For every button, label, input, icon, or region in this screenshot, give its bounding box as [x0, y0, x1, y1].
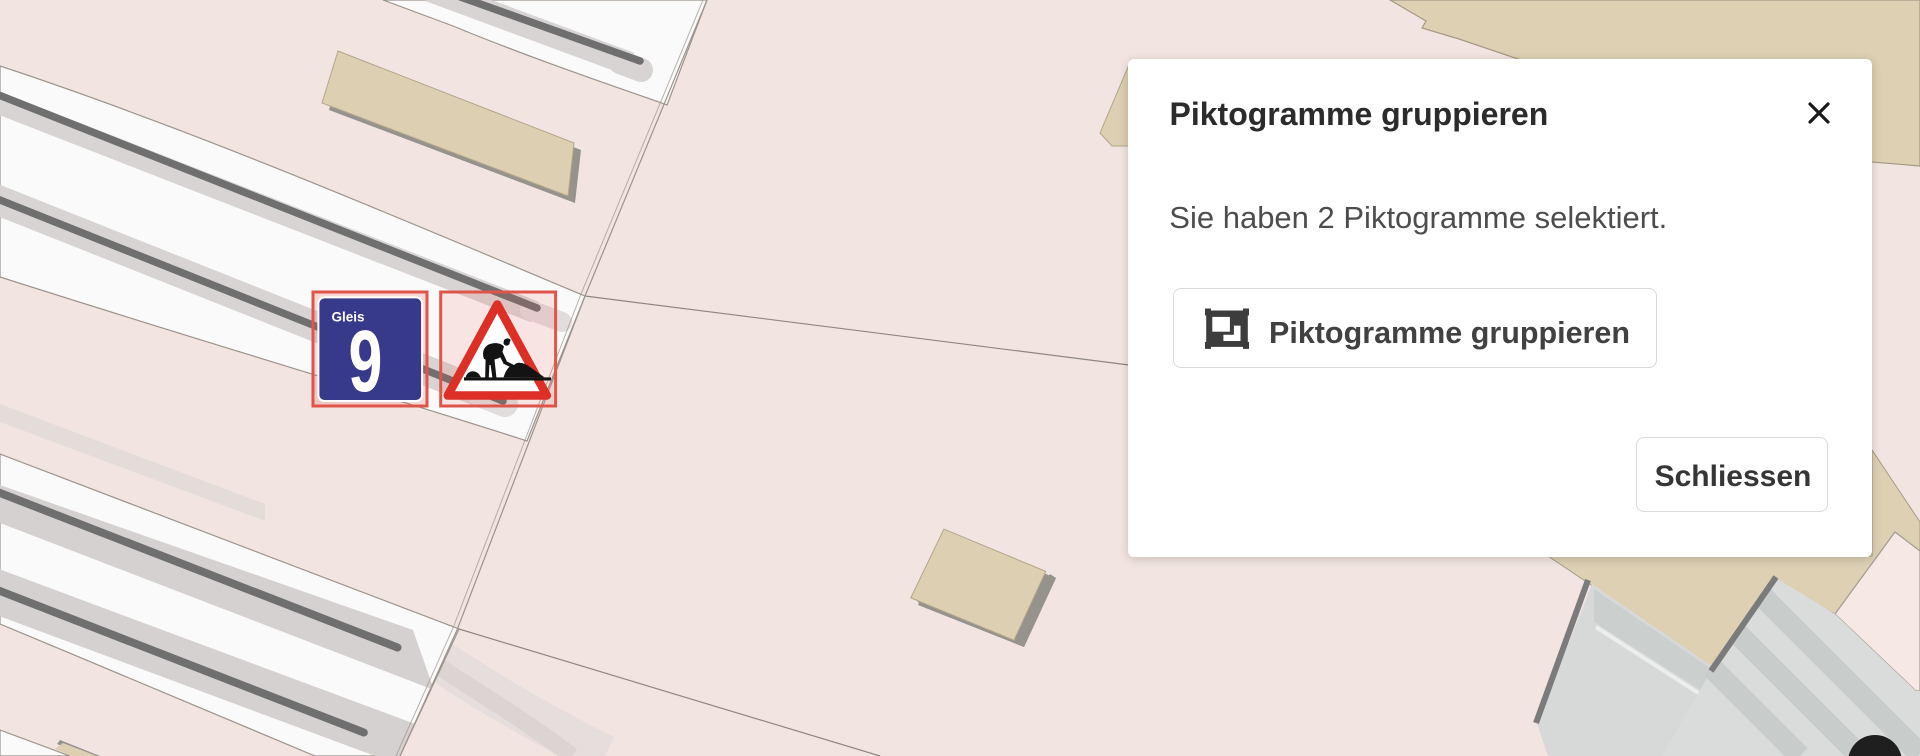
svg-text:9: 9 — [349, 312, 383, 409]
